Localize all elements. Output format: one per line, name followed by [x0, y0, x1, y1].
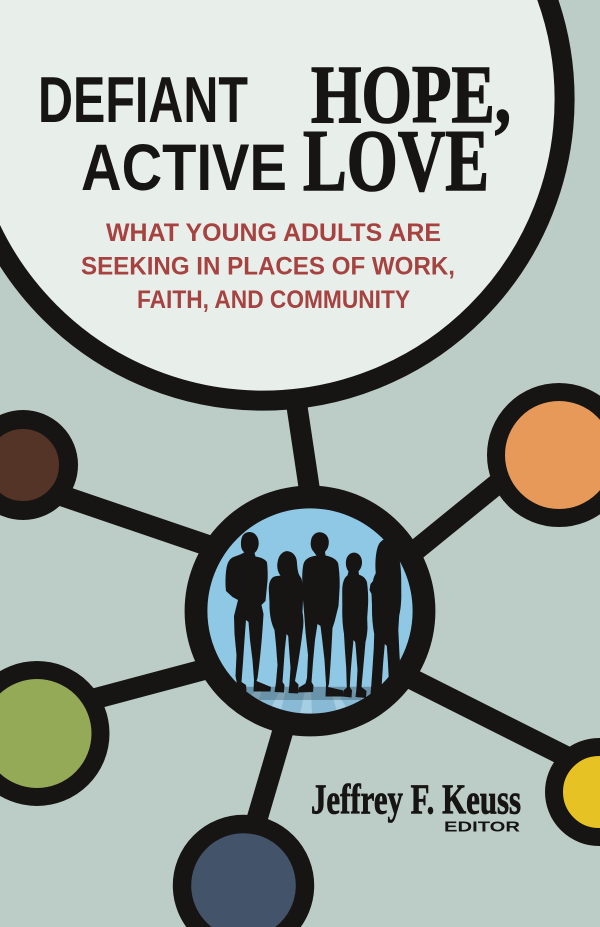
svg-text:LOVE: LOVE [303, 113, 489, 210]
svg-text:ACTIVE: ACTIVE [81, 130, 287, 204]
svg-text:SEEKING IN PLACES OF WORK,: SEEKING IN PLACES OF WORK, [81, 253, 455, 281]
svg-text:FAITH, AND COMMUNITY: FAITH, AND COMMUNITY [137, 286, 410, 314]
svg-text:EDITOR: EDITOR [444, 819, 520, 836]
svg-text:WHAT YOUNG ADULTS ARE: WHAT YOUNG ADULTS ARE [106, 219, 441, 247]
svg-text:Jeffrey F. Keuss: Jeffrey F. Keuss [311, 778, 521, 824]
svg-text:DEFIANT: DEFIANT [38, 63, 248, 136]
